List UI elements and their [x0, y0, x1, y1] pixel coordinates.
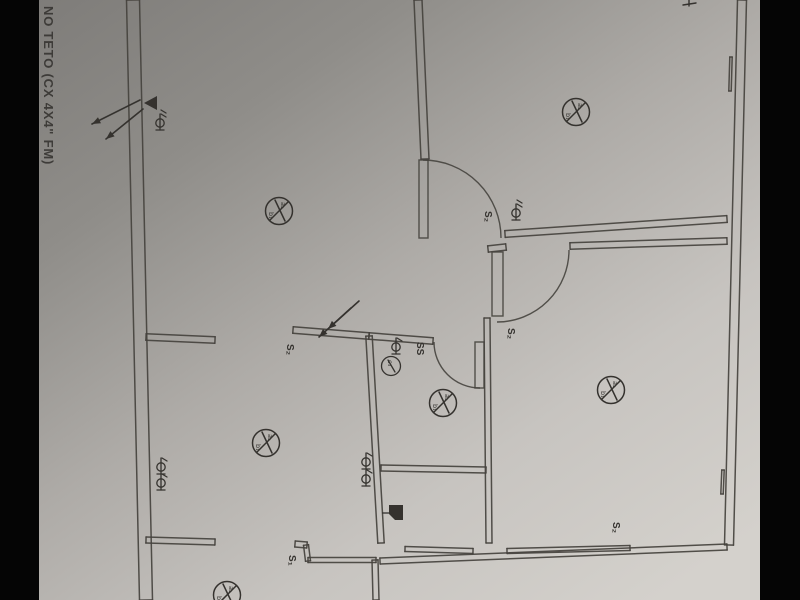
- svg-text:a₂: a₂: [611, 381, 619, 388]
- switch-symbol: S₂: [482, 211, 493, 222]
- svg-text:b₁: b₁: [564, 113, 572, 120]
- ceiling-note: NO TETO (CX 4X4" FM): [41, 6, 56, 165]
- switch-symbol: SS: [414, 342, 425, 356]
- svg-text:a₂: a₂: [266, 434, 274, 441]
- switch-symbol: S₁: [286, 555, 297, 566]
- svg-text:SS: SS: [414, 342, 425, 356]
- svg-text:a₂: a₂: [279, 202, 287, 209]
- svg-text:S₂: S₂: [482, 211, 493, 222]
- svg-text:b₁: b₁: [599, 391, 607, 398]
- switch-symbol: S₂: [505, 328, 516, 339]
- svg-text:S₁: S₁: [286, 555, 297, 566]
- switch-symbol: S₂: [284, 344, 295, 355]
- svg-text:b₁: b₁: [267, 212, 275, 219]
- photo-black-edge-left: [0, 0, 39, 600]
- svg-text:S₂: S₂: [610, 522, 621, 533]
- svg-text:S₂: S₂: [284, 344, 295, 355]
- svg-text:a₂: a₂: [443, 394, 451, 401]
- switch-symbol: S₂: [610, 522, 621, 533]
- svg-text:a₂: a₂: [227, 586, 235, 593]
- svg-text:b₁: b₁: [431, 404, 439, 411]
- photo-black-edge-right: [760, 0, 800, 600]
- svg-text:a₂: a₂: [576, 103, 584, 110]
- floorplan-photo: a₂b₁a₂b₁a₂b₁a₂b₁a₂b₁a₂b₁S₂S₂S₂S₁S₂SSc₃ N…: [0, 0, 800, 600]
- svg-text:b₁: b₁: [215, 596, 223, 600]
- svg-text:b₁: b₁: [254, 444, 262, 451]
- floor-plan-svg: a₂b₁a₂b₁a₂b₁a₂b₁a₂b₁a₂b₁S₂S₂S₂S₁S₂SSc₃ N…: [0, 0, 800, 600]
- svg-text:S₂: S₂: [505, 328, 516, 339]
- svg-text:c₃: c₃: [386, 360, 394, 367]
